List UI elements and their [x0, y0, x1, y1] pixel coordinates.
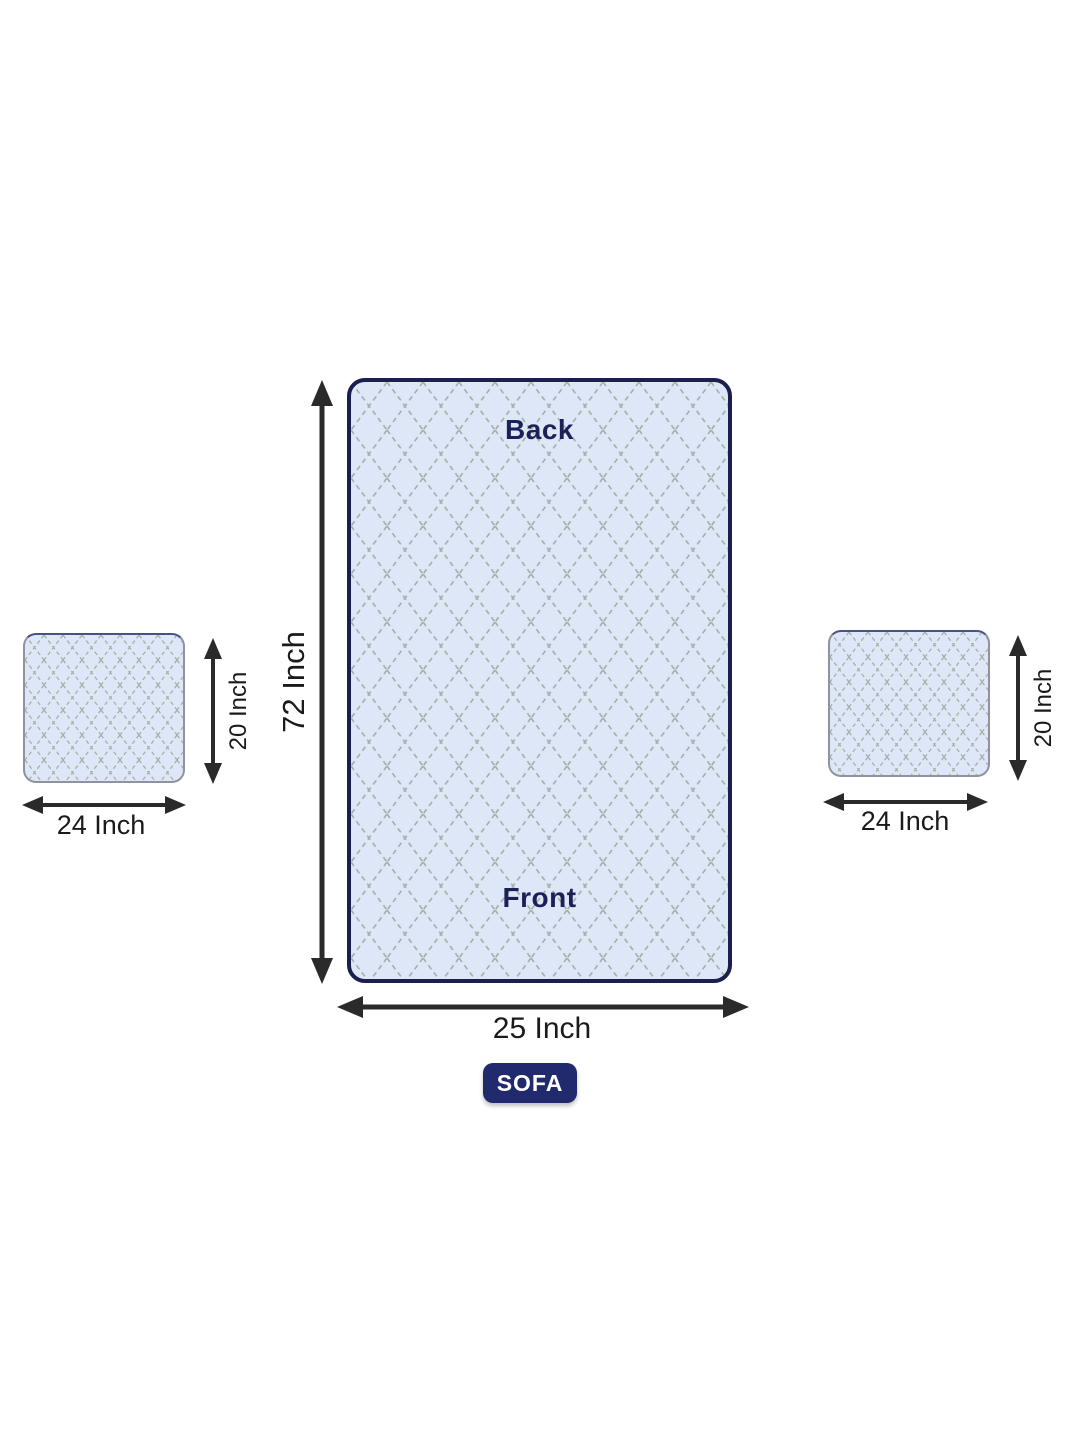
sofa-width-label: 25 Inch — [342, 1012, 742, 1046]
sofa-badge: SOFA — [483, 1063, 577, 1103]
sofa-height-arrow — [309, 380, 335, 984]
left-cushion-width-label: 24 Inch — [21, 810, 181, 841]
quilt-pattern — [25, 635, 183, 781]
product-dimension-diagram: Back Front 72 Inch 25 Inch SOFA 20 Inch — [0, 0, 1080, 1440]
back-label: Back — [351, 414, 728, 446]
sofa-panel: Back Front — [347, 378, 732, 983]
right-cushion-height-arrow — [1007, 635, 1029, 781]
left-cushion-height-arrow — [202, 638, 224, 784]
right-cushion-panel — [828, 630, 990, 777]
right-cushion-height-label: 20 Inch — [1030, 653, 1058, 763]
left-cushion-panel — [23, 633, 185, 783]
front-label: Front — [351, 882, 728, 914]
sofa-height-label: 72 Inch — [278, 612, 310, 752]
left-cushion-height-label: 20 Inch — [225, 656, 253, 766]
right-cushion-width-label: 24 Inch — [825, 806, 985, 837]
quilt-pattern — [830, 632, 988, 775]
